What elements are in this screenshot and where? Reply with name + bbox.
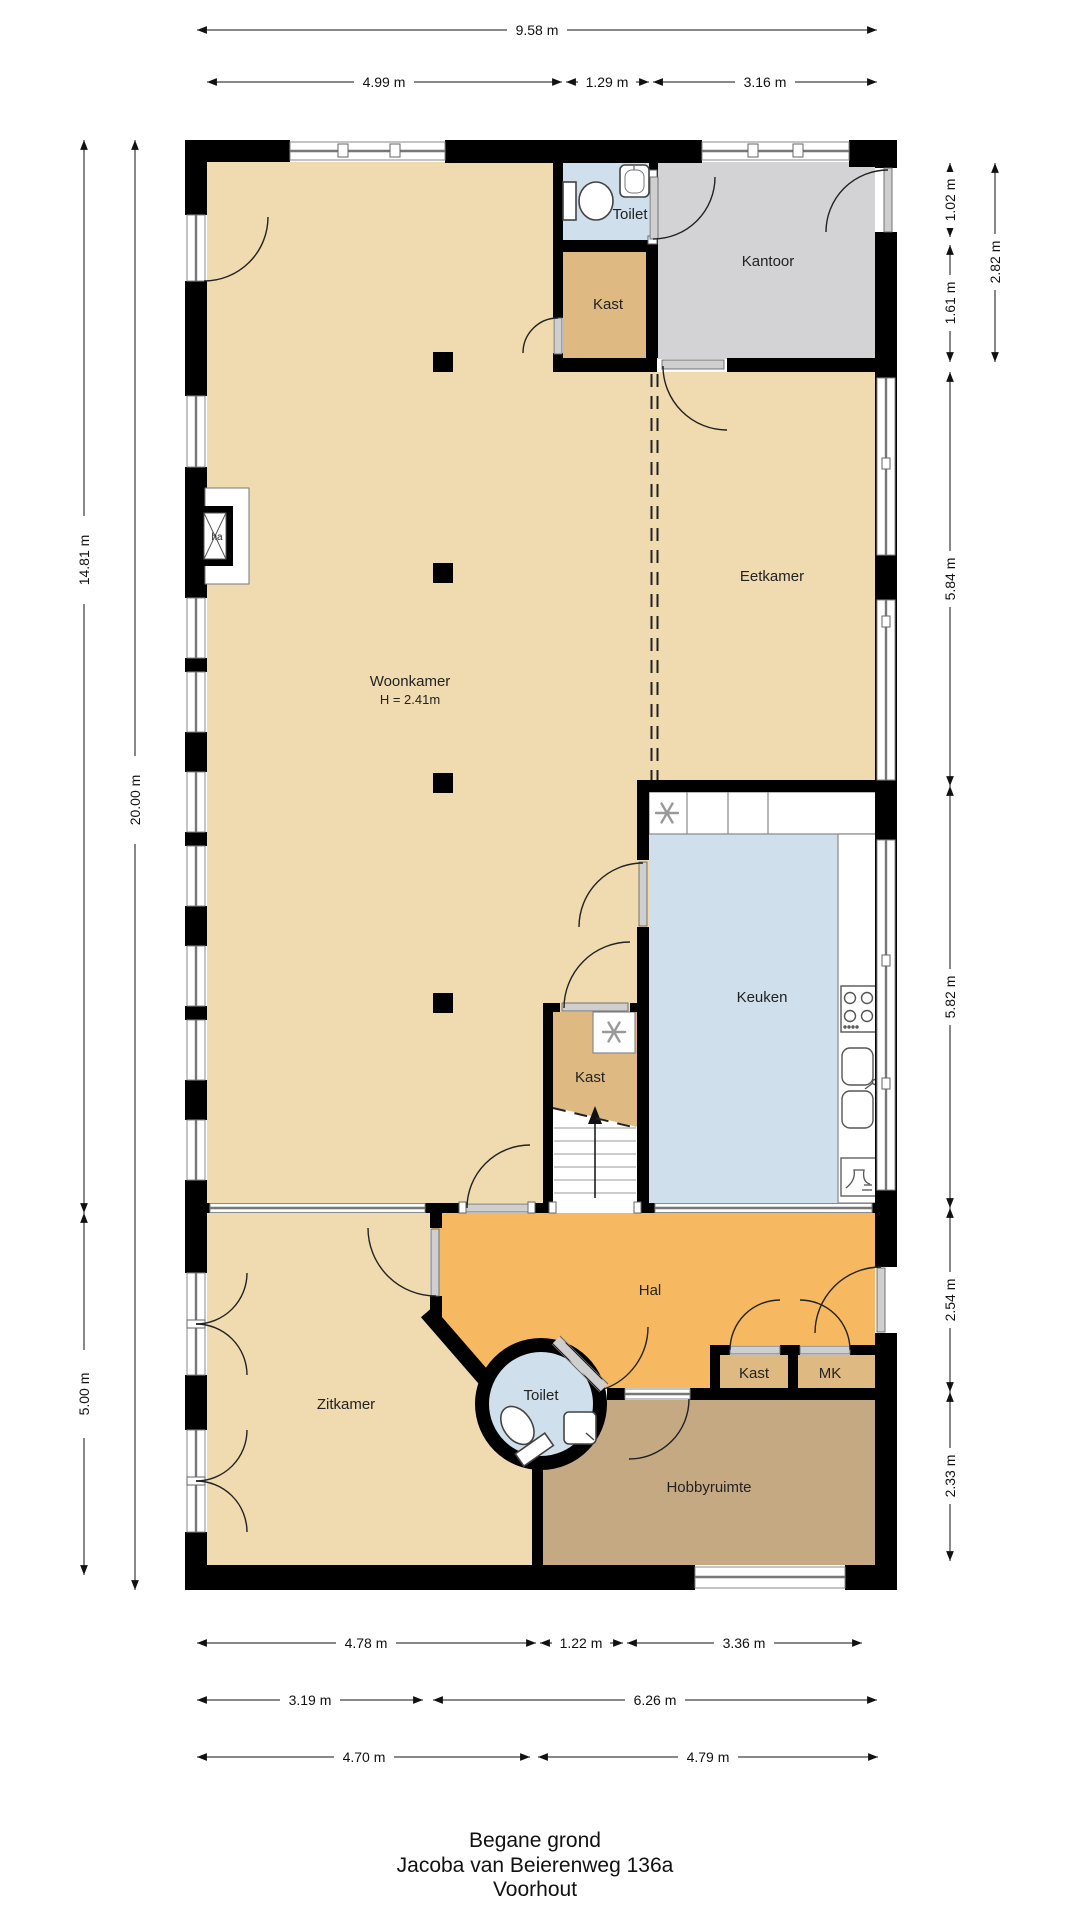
label-woonkamer-height: H = 2.41m: [380, 692, 440, 707]
dim-right-0: 1.02 m: [942, 179, 958, 222]
dimensions-right: 1.02 m 1.61 m 2.82 m 5.84 m 5.82 m 2.54 …: [942, 163, 1003, 1561]
dim-top-2: 1.29 m: [586, 74, 629, 90]
dim-bottom-0: 4.78 m: [345, 1635, 388, 1651]
label-eetkamer: Eetkamer: [740, 568, 804, 585]
dim-left-1: 20.00 m: [127, 775, 143, 826]
label-keuken: Keuken: [737, 989, 788, 1006]
title-address: Jacoba van Beierenweg 136a: [397, 1854, 674, 1877]
label-zitkamer: Zitkamer: [317, 1396, 375, 1413]
fireplace-label: ha: [211, 532, 223, 543]
dim-bottom-6: 4.79 m: [687, 1749, 730, 1765]
floor-plan-svg: ha Toilet Kantoor Kast Eetkamer Woonkame…: [0, 0, 1080, 1920]
dim-right-2: 2.82 m: [987, 241, 1003, 284]
dim-top-total: 9.58 m: [516, 22, 559, 38]
label-toilet-round: Toilet: [523, 1387, 559, 1404]
dim-left-2: 5.00 m: [76, 1373, 92, 1416]
dim-left-0: 14.81 m: [76, 535, 92, 586]
toilet-icon: [563, 182, 576, 220]
dim-top-1: 4.99 m: [363, 74, 406, 90]
label-mk: MK: [819, 1365, 842, 1382]
dim-right-3: 5.84 m: [942, 558, 958, 601]
plan-title: Begane grond Jacoba van Beierenweg 136a …: [397, 1829, 674, 1901]
dishwasher-icon: [841, 1158, 877, 1196]
dim-bottom-1: 1.22 m: [560, 1635, 603, 1651]
fireplace: ha: [197, 488, 249, 584]
dim-right-6: 2.33 m: [942, 1455, 958, 1498]
kitchen-counter-top: [649, 792, 878, 834]
dim-bottom-3: 3.19 m: [289, 1692, 332, 1708]
label-kast-mid: Kast: [575, 1069, 606, 1086]
label-hal: Hal: [639, 1282, 662, 1299]
dimensions-top: 9.58 m 4.99 m 1.29 m 3.16 m: [197, 22, 877, 90]
dim-right-1: 1.61 m: [942, 282, 958, 325]
dim-bottom-5: 4.70 m: [343, 1749, 386, 1765]
title-floor: Begane grond: [469, 1829, 601, 1852]
dimensions-bottom: 4.78 m 1.22 m 3.36 m 3.19 m 6.26 m 4.70 …: [197, 1635, 878, 1765]
label-kast-top: Kast: [593, 296, 624, 313]
dim-right-5: 2.54 m: [942, 1279, 958, 1322]
label-kast-hal: Kast: [739, 1365, 770, 1382]
label-woonkamer: Woonkamer: [370, 673, 451, 690]
label-hobbyruimte: Hobbyruimte: [666, 1479, 751, 1496]
label-kantoor: Kantoor: [742, 253, 795, 270]
label-toilet-top: Toilet: [612, 206, 648, 223]
stove-icon: [841, 986, 876, 1032]
dimensions-left: 14.81 m 20.00 m 5.00 m: [76, 140, 143, 1590]
dim-right-4: 5.82 m: [942, 976, 958, 1019]
dim-top-3: 3.16 m: [744, 74, 787, 90]
title-city: Voorhout: [493, 1878, 577, 1901]
vent-box: [593, 1012, 635, 1053]
dim-bottom-4: 6.26 m: [634, 1692, 677, 1708]
corner-sink-icon: [564, 1412, 596, 1444]
dim-bottom-2: 3.36 m: [723, 1635, 766, 1651]
